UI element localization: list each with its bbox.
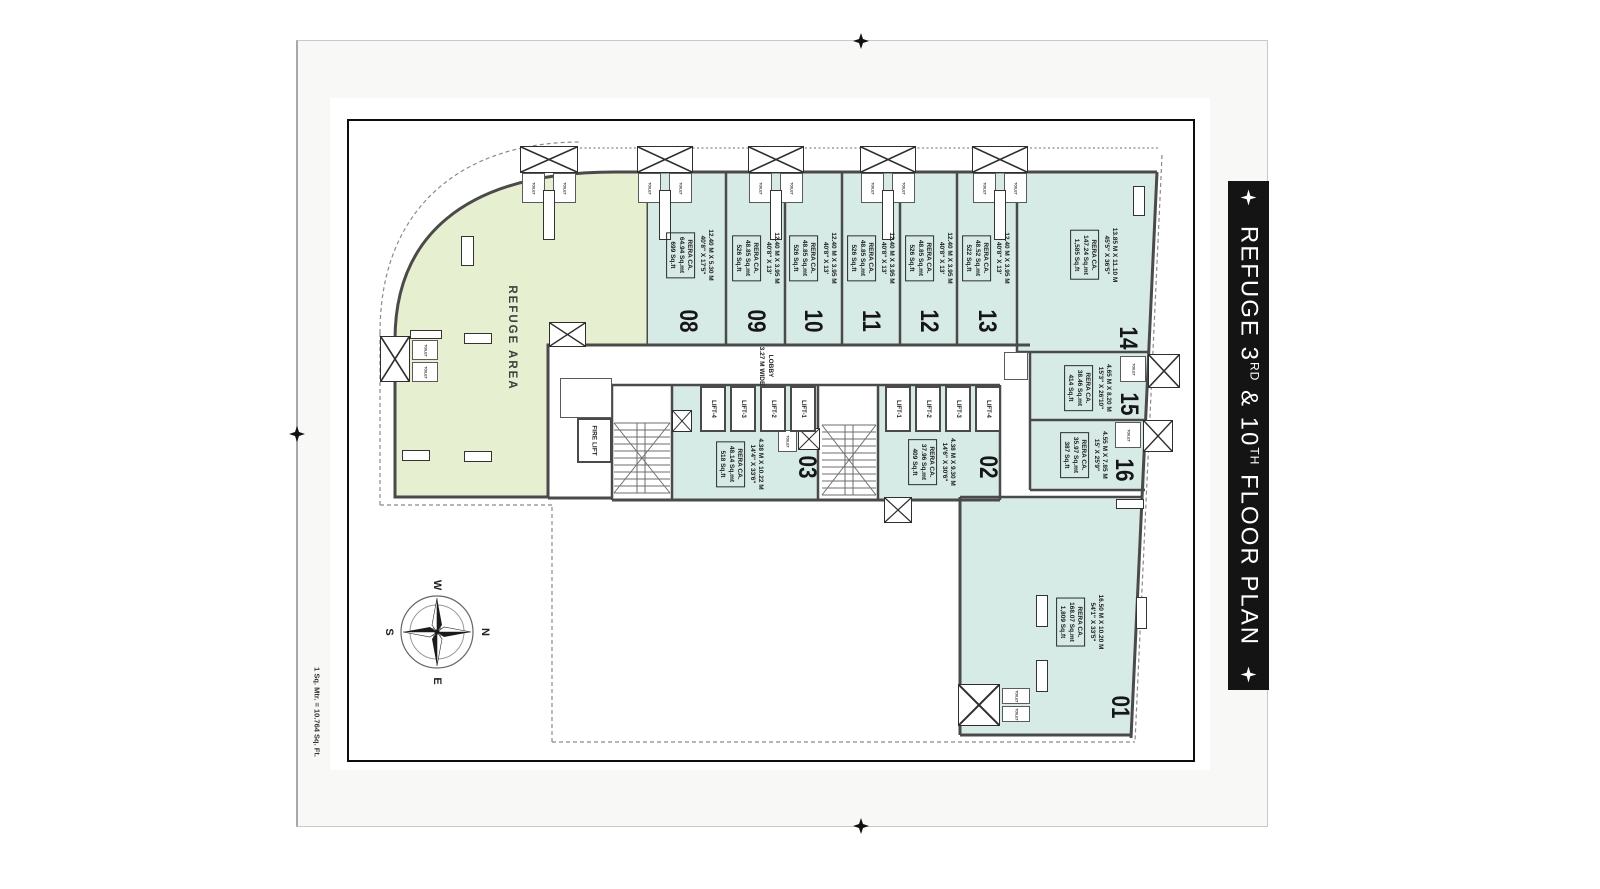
toilet-label: TOILET — [790, 182, 794, 194]
unit-09-label: 12.40 M X 3.95 M 40'8" X 13' RERA CA. 48… — [732, 232, 780, 283]
unit-12-number: 12 — [914, 309, 943, 332]
unit-09-sqft: 526 Sq.ft — [734, 240, 742, 276]
lift-room: LIFT-2 — [760, 386, 786, 432]
unit-15-dim-m: 4.65 M X 8.20 M — [1104, 364, 1112, 412]
unit-16-rera-box: RERA CA. 35.97 Sq.mt 387 Sq.ft — [1060, 432, 1089, 478]
toilet-label: TOILET — [1131, 363, 1135, 375]
toilet-room: TOILET — [861, 173, 884, 203]
unit-03-sqmt: 48.14 Sq.mt — [726, 446, 734, 482]
banner-title-sup: TH — [1248, 447, 1262, 465]
rera-ca-label: RERA CA. — [751, 240, 759, 276]
sparkle-icon — [1241, 189, 1257, 205]
banner-title-sup: RD — [1248, 361, 1262, 380]
unit-16-label: 4.55 M X 7.85 M 15' X 25'9" RERA CA. 35.… — [1060, 431, 1108, 479]
duct-shaft-box — [884, 497, 912, 523]
duct-shaft-box — [748, 146, 804, 173]
rera-ca-label: RERA CA. — [685, 237, 693, 273]
rera-ca-label: RERA CA. — [924, 240, 932, 276]
compass-north: N — [479, 628, 491, 636]
lift-label: LIFT-3 — [740, 400, 746, 418]
unit-02-label: 4.38 M X 9.30 M 14'6" X 30'6" RERA CA. 3… — [908, 438, 956, 486]
unit-02-sqft: 409 Sq.ft — [910, 444, 918, 480]
unit-01-number: 01 — [1105, 695, 1134, 718]
unit-01-sqft: 1,809 Sq.ft — [1058, 602, 1066, 642]
unit-08-rera-box: RERA CA. 64.94 Sq.mt 699 Sq.ft — [666, 232, 695, 278]
unit-10-sqmt: 48.85 Sq.mt — [799, 240, 807, 276]
lift-label: LIFT-4 — [710, 400, 716, 418]
furniture-rect — [1036, 660, 1048, 692]
unit-09-dim-m: 12.40 M X 3.95 M — [772, 232, 780, 283]
unit-15-sqft: 414 Sq.ft — [1066, 370, 1074, 406]
furniture-rect — [464, 333, 492, 344]
unit-01-sqmt: 168.07 Sq.mt — [1066, 602, 1074, 642]
unit-14-dim-ft: 45'5" X 36'5" — [1101, 228, 1109, 283]
unit-11-label: 12.40 M X 3.95 M 40'8" X 13' RERA CA. 48… — [847, 232, 895, 283]
lobby-label-line1: LOBBY — [765, 347, 774, 386]
toilet-label: TOILET — [871, 182, 875, 194]
toilet-room: TOILET — [1002, 688, 1030, 704]
unit-02-rera-box: RERA CA. 37.96 Sq.mt 409 Sq.ft — [908, 439, 937, 485]
staircase-middle — [822, 425, 876, 495]
unit-01-dim-ft: 54'1" X 33'5" — [1087, 595, 1095, 650]
unit-14-rera-box: RERA CA. 147.24 Sq.mt 1,585 Sq.ft — [1070, 230, 1099, 280]
unit-15-rera-box: RERA CA. 38.46 Sq.mt 414 Sq.ft — [1064, 365, 1093, 411]
toilet-label: TOILET — [563, 182, 567, 194]
unit-16-number: 16 — [1109, 458, 1138, 481]
banner-title-part: FLOOR PLAN — [1236, 465, 1263, 646]
unit-11-number: 11 — [856, 310, 885, 332]
furniture-rect — [464, 451, 492, 462]
duct-shaft-box — [860, 146, 916, 173]
duct-shaft-box — [380, 336, 410, 382]
compass-south: S — [383, 628, 395, 635]
unit-09-number: 09 — [741, 309, 770, 332]
unit-08-number: 08 — [673, 309, 702, 332]
unit-13-rera-box: RERA CA. 48.52 Sq.mt 522 Sq.ft — [962, 235, 991, 281]
unit-03-label: 4.38 M X 10.22 M 14'4" X 33'6" RERA CA. … — [716, 438, 764, 489]
unit-03-dim-m: 4.38 M X 10.22 M — [756, 438, 764, 489]
toilet-room: TOILET — [749, 173, 772, 203]
unit-11-dim-m: 12.40 M X 3.95 M — [887, 232, 895, 283]
service-room — [1004, 352, 1028, 380]
toilet-room: TOILET — [1115, 422, 1141, 448]
unit-03-dim-ft: 14'4" X 33'6" — [747, 438, 755, 489]
unit-16-sqmt: 35.97 Sq.mt — [1070, 437, 1078, 473]
unit-12-rera-box: RERA CA. 48.85 Sq.mt 526 Sq.ft — [905, 235, 934, 281]
unit-16-dim-m: 4.55 M X 7.85 M — [1100, 431, 1108, 479]
unit-03-number: 03 — [792, 455, 821, 478]
lobby-label-line2: 3.27 M WIDE — [756, 347, 765, 386]
unit-15-sqmt: 38.46 Sq.mt — [1074, 370, 1082, 406]
unit-09-sqmt: 48.85 Sq.mt — [742, 240, 750, 276]
banner-title-part: & 10 — [1236, 381, 1263, 447]
unit-08-label: 12.40 M X 5.30 M 40'8" X 17'5" RERA CA. … — [666, 229, 714, 280]
unit-09-rera-box: RERA CA. 48.85 Sq.mt 526 Sq.ft — [732, 235, 761, 281]
floor-plan-page: W N E S TOILET TOILET TOILET TOILET TOIL… — [0, 0, 1600, 889]
title-banner-inner: REFUGE 3RD & 10TH FLOOR PLAN — [1228, 181, 1269, 690]
unit-10-rera-box: RERA CA. 48.85 Sq.mt 526 Sq.ft — [789, 235, 818, 281]
lift-room: LIFT-3 — [730, 386, 756, 432]
duct-shaft-box — [972, 146, 1028, 173]
unit-03-sqft: 518 Sq.ft — [718, 446, 726, 482]
rera-ca-label: RERA CA. — [1079, 437, 1087, 473]
duct-shaft-box — [1143, 420, 1173, 452]
toilet-label: TOILET — [679, 182, 683, 194]
duct-shaft-box — [1148, 354, 1180, 388]
lift-room: LIFT-4 — [975, 386, 1001, 432]
unit-13-dim-ft: 40'8" X 13' — [993, 232, 1001, 283]
toilet-room: TOILET — [1004, 173, 1027, 203]
fire-lift-label: FIRE LIFT — [591, 425, 598, 455]
unit-11-rera-box: RERA CA. 48.85 Sq.mt 526 Sq.ft — [847, 235, 876, 281]
unit-08-dim-ft: 40'8" X 17'5" — [697, 229, 705, 280]
toilet-label: TOILET — [1014, 690, 1018, 702]
banner-title: REFUGE 3RD & 10TH FLOOR PLAN — [1235, 225, 1263, 645]
toilet-label: TOILET — [532, 182, 536, 194]
unit-16-dim-ft: 15' X 25'9" — [1091, 431, 1099, 479]
unit-08-sqft: 699 Sq.ft — [668, 237, 676, 273]
toilet-room: TOILET — [412, 340, 438, 360]
lift-room: LIFT-2 — [915, 386, 941, 432]
furniture-rect — [1136, 597, 1147, 629]
toilet-room: TOILET — [553, 173, 576, 203]
lift-room: LIFT-4 — [700, 386, 726, 432]
lift-label: LIFT-2 — [925, 400, 931, 418]
unit-14-sqmt: 147.24 Sq.mt — [1080, 235, 1088, 275]
toilet-label: TOILET — [1126, 429, 1130, 441]
lift-label: LIFT-1 — [800, 400, 806, 418]
unit-11-sqft: 526 Sq.ft — [849, 240, 857, 276]
unit-13-sqft: 522 Sq.ft — [964, 240, 972, 276]
unit-15-dim-ft: 15'3" X 26'10" — [1095, 364, 1103, 412]
unit-14-sqft: 1,585 Sq.ft — [1072, 235, 1080, 275]
unit-13-number: 13 — [972, 309, 1001, 332]
unit-03-rera-box: RERA CA. 48.14 Sq.mt 518 Sq.ft — [716, 441, 745, 487]
unit-12-dim-m: 12.40 M X 3.95 M — [945, 232, 953, 283]
lift-label: LIFT-3 — [955, 400, 961, 418]
lift-label: LIFT-1 — [895, 400, 901, 418]
furniture-rect — [1036, 595, 1048, 627]
rera-ca-label: RERA CA. — [1075, 602, 1083, 642]
unit-12-sqft: 526 Sq.ft — [907, 240, 915, 276]
unit-10-number: 10 — [798, 309, 827, 332]
unit-01-label: 16.50 M X 10.20 M 54'1" X 33'5" RERA CA.… — [1056, 595, 1104, 650]
rera-ca-label: RERA CA. — [927, 444, 935, 480]
unit-16-sqft: 387 Sq.ft — [1062, 437, 1070, 473]
unit-13-sqmt: 48.52 Sq.mt — [972, 240, 980, 276]
unit-02-dim-m: 4.38 M X 9.30 M — [948, 438, 956, 486]
unit-11-dim-ft: 40'8" X 13' — [878, 232, 886, 283]
lift-room: LIFT-1 — [885, 386, 911, 432]
unit-13-label: 12.40 M X 3.95 M 40'8" X 13' RERA CA. 48… — [962, 232, 1010, 283]
toilet-label: TOILET — [902, 182, 906, 194]
compass-east: E — [431, 677, 443, 684]
lift-label: LIFT-2 — [770, 400, 776, 418]
toilet-label: TOILET — [786, 435, 790, 447]
toilet-label: TOILET — [1014, 708, 1018, 720]
rera-ca-label: RERA CA. — [981, 240, 989, 276]
unit-12-label: 12.40 M X 3.95 M 40'8" X 13' RERA CA. 48… — [905, 232, 953, 283]
lift-room: LIFT-1 — [790, 386, 816, 432]
lift-label: LIFT-4 — [985, 400, 991, 418]
duct-shaft-box — [637, 146, 693, 173]
furniture-rect — [410, 330, 442, 339]
compass-rose: W N E S — [383, 580, 491, 685]
duct-rect — [543, 190, 555, 240]
fire-lift-room: FIRE LIFT — [577, 418, 612, 463]
rera-ca-label: RERA CA. — [735, 446, 743, 482]
toilet-room: TOILET — [1120, 356, 1146, 382]
unit-11-sqmt: 48.85 Sq.mt — [857, 240, 865, 276]
refuge-area-label: REFUGE AREA — [506, 285, 518, 390]
unit-08-dim-m: 12.40 M X 5.30 M — [706, 229, 714, 280]
toilet-room: TOILET — [778, 430, 797, 452]
sparkle-icon — [1241, 666, 1257, 682]
toilet-label: TOILET — [1014, 182, 1018, 194]
unit-02-dim-ft: 14'6" X 30'6" — [939, 438, 947, 486]
unit-09-dim-ft: 40'8" X 13' — [763, 232, 771, 283]
unit-01-dim-m: 16.50 M X 10.20 M — [1096, 595, 1104, 650]
unit-02-number: 02 — [973, 455, 1002, 478]
unit-12-sqmt: 48.85 Sq.mt — [915, 240, 923, 276]
title-banner: REFUGE 3RD & 10TH FLOOR PLAN — [1228, 181, 1269, 690]
furniture-rect — [461, 236, 474, 266]
duct-shaft-box — [672, 410, 692, 432]
toilet-room: TOILET — [522, 173, 545, 203]
scale-note: 1 Sq. Mtr. = 10.764 Sq. Ft. — [313, 667, 322, 757]
unit-14-dim-m: 13.85 M X 11.10 M — [1110, 228, 1118, 283]
service-lobby — [560, 378, 612, 418]
lobby-label: LOBBY 3.27 M WIDE — [756, 347, 774, 386]
toilet-room: TOILET — [412, 362, 438, 382]
toilet-label: TOILET — [759, 182, 763, 194]
unit-10-dim-ft: 40'8" X 13' — [820, 232, 828, 283]
toilet-room: TOILET — [973, 173, 996, 203]
toilet-label: TOILET — [423, 344, 427, 356]
duct-shaft-box — [958, 684, 1000, 726]
toilet-room: TOILET — [780, 173, 803, 203]
rera-ca-label: RERA CA. — [1083, 370, 1091, 406]
compass-west: W — [431, 580, 443, 591]
rera-ca-label: RERA CA. — [866, 240, 874, 276]
unit-10-label: 12.40 M X 3.95 M 40'8" X 13' RERA CA. 48… — [789, 232, 837, 283]
furniture-rect — [1116, 499, 1144, 509]
unit-15-number: 15 — [1114, 392, 1143, 415]
rera-ca-label: RERA CA. — [808, 240, 816, 276]
duct-shaft-box — [549, 322, 586, 347]
unit-13-dim-m: 12.40 M X 3.95 M — [1002, 232, 1010, 283]
toilet-room: TOILET — [1002, 706, 1030, 722]
furniture-rect — [402, 450, 430, 461]
toilet-label: TOILET — [423, 366, 427, 378]
toilet-label: TOILET — [983, 182, 987, 194]
unit-01-rera-box: RERA CA. 168.07 Sq.mt 1,809 Sq.ft — [1056, 597, 1085, 647]
unit-15-label: 4.65 M X 8.20 M 15'3" X 26'10" RERA CA. … — [1064, 364, 1112, 412]
unit-02-sqmt: 37.96 Sq.mt — [918, 444, 926, 480]
toilet-room: TOILET — [638, 173, 661, 203]
rera-ca-label: RERA CA. — [1089, 235, 1097, 275]
furniture-rect — [1133, 186, 1145, 216]
staircase-left — [614, 423, 670, 493]
unit-12-dim-ft: 40'8" X 13' — [936, 232, 944, 283]
unit-14-number: 14 — [1113, 326, 1142, 349]
unit-10-dim-m: 12.40 M X 3.95 M — [829, 232, 837, 283]
unit-14-label: 13.85 M X 11.10 M 45'5" X 36'5" RERA CA.… — [1070, 228, 1118, 283]
toilet-room: TOILET — [669, 173, 692, 203]
unit-10-sqft: 526 Sq.ft — [791, 240, 799, 276]
banner-title-part: REFUGE 3 — [1236, 225, 1263, 361]
lift-room: LIFT-3 — [945, 386, 971, 432]
unit-08-sqmt: 64.94 Sq.mt — [676, 237, 684, 273]
toilet-label: TOILET — [648, 182, 652, 194]
toilet-room: TOILET — [892, 173, 915, 203]
duct-shaft-box — [520, 146, 578, 173]
